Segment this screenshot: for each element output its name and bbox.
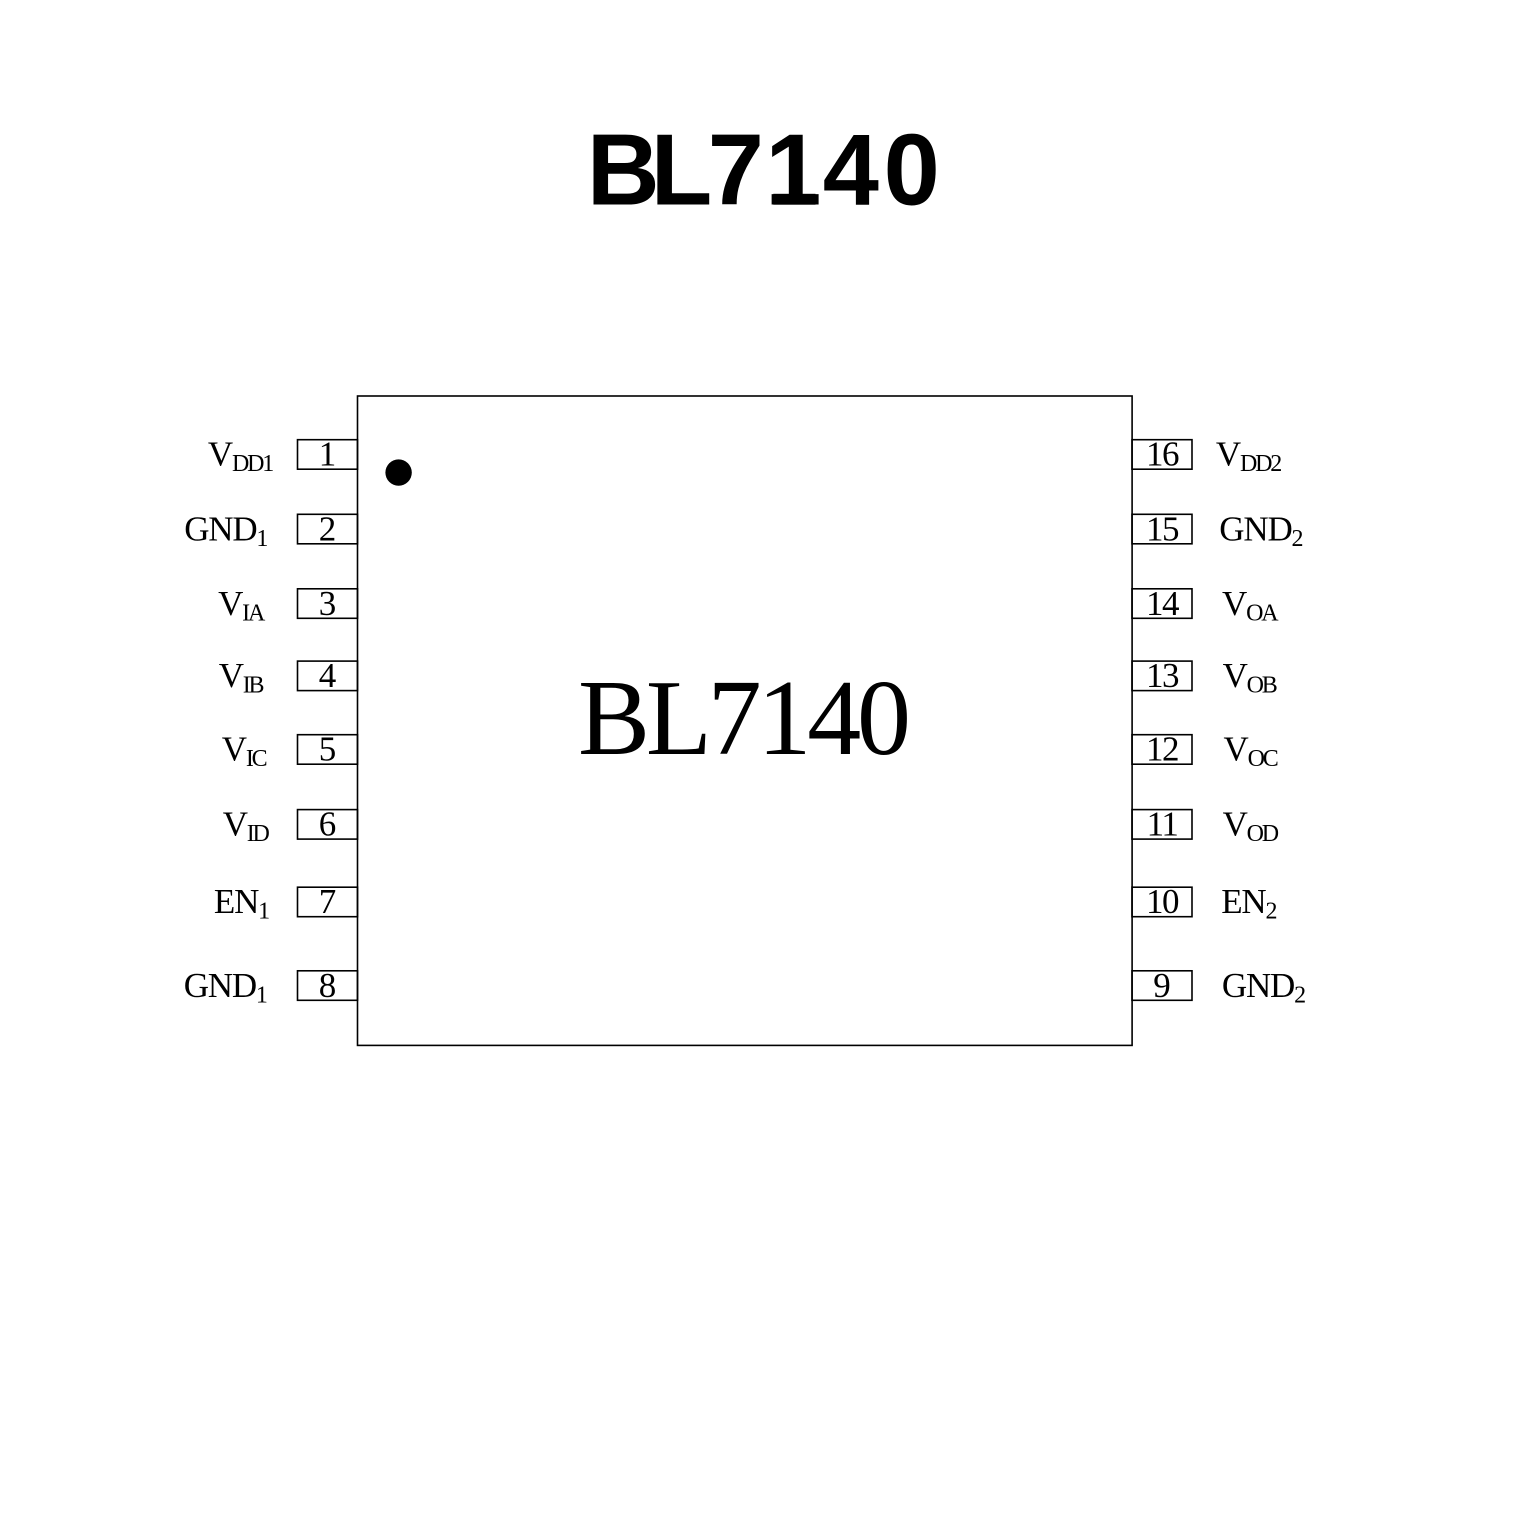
- svg-text:7: 7: [319, 882, 337, 921]
- svg-text:8: 8: [319, 966, 337, 1005]
- svg-text:GND1: GND1: [184, 966, 267, 1009]
- svg-text:14: 14: [1146, 584, 1179, 623]
- svg-text:BL7140: BL7140: [587, 115, 940, 227]
- svg-text:10: 10: [1146, 882, 1179, 921]
- svg-text:1: 1: [319, 435, 337, 474]
- svg-text:9: 9: [1153, 966, 1171, 1005]
- svg-text:GND2: GND2: [1222, 966, 1305, 1009]
- svg-text:11: 11: [1147, 805, 1178, 844]
- svg-text:12: 12: [1146, 730, 1178, 769]
- svg-text:5: 5: [319, 730, 337, 769]
- svg-text:2: 2: [319, 509, 337, 548]
- svg-text:4: 4: [319, 656, 337, 695]
- svg-text:6: 6: [319, 805, 337, 844]
- svg-text:GND2: GND2: [1219, 509, 1302, 552]
- svg-text:13: 13: [1146, 656, 1179, 695]
- svg-text:GND1: GND1: [184, 509, 267, 552]
- svg-text:BL7140: BL7140: [578, 659, 907, 778]
- svg-text:15: 15: [1146, 509, 1179, 548]
- svg-text:16: 16: [1146, 435, 1179, 474]
- svg-text:3: 3: [319, 584, 337, 623]
